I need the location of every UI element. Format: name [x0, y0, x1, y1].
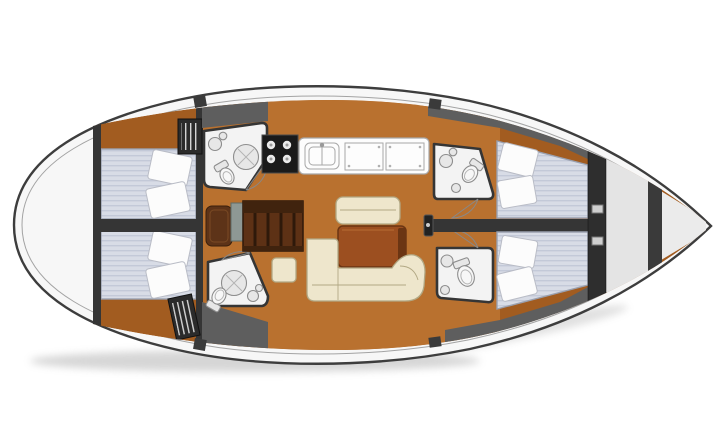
- instrument-panel: [231, 203, 243, 241]
- louver-slats: [181, 123, 199, 150]
- bow-compartments: [588, 141, 711, 309]
- chainplate-mark: [428, 98, 441, 110]
- yacht-deck-plan-canvas: [0, 0, 720, 446]
- louvered-locker-port: [178, 119, 202, 154]
- burner-center: [286, 144, 289, 147]
- faucet: [449, 148, 457, 156]
- nav-station: [206, 201, 303, 251]
- chart-table-fiddle: [243, 201, 303, 213]
- bulkhead-hatch: [592, 237, 603, 245]
- bench-settee: [336, 197, 400, 224]
- interior: [93, 84, 711, 366]
- chainplate-mark: [193, 338, 207, 351]
- shower-drain: [452, 184, 461, 193]
- centerline-divider-wall: [424, 219, 594, 232]
- pillow: [497, 175, 537, 209]
- burner-center: [286, 158, 289, 161]
- pillow: [498, 235, 538, 269]
- burner-center: [270, 158, 273, 161]
- aft-cabin-divider-wall: [96, 219, 198, 232]
- salon-table: [338, 226, 406, 267]
- chainplate-mark: [428, 336, 441, 348]
- door-knob: [426, 223, 430, 227]
- stove: [262, 135, 298, 173]
- faucet: [320, 143, 324, 147]
- sink: [440, 155, 453, 168]
- stool: [272, 258, 296, 282]
- forward-bulkhead: [648, 180, 662, 271]
- chainplate-mark: [193, 95, 207, 108]
- galley: [262, 135, 429, 174]
- sink: [248, 291, 259, 302]
- bulkhead-hatch: [592, 205, 603, 213]
- sink: [209, 138, 222, 151]
- shower-drain: [441, 286, 450, 295]
- faucet: [256, 285, 263, 292]
- chart-table-edge: [243, 246, 303, 251]
- collision-bulkhead: [588, 148, 606, 302]
- faucet: [219, 132, 227, 140]
- sink: [441, 255, 453, 267]
- aft-cabin-starboard: [101, 230, 196, 299]
- burner-center: [270, 144, 273, 147]
- aft-cabin-port: [101, 149, 196, 219]
- yacht-deck-plan: [0, 0, 720, 446]
